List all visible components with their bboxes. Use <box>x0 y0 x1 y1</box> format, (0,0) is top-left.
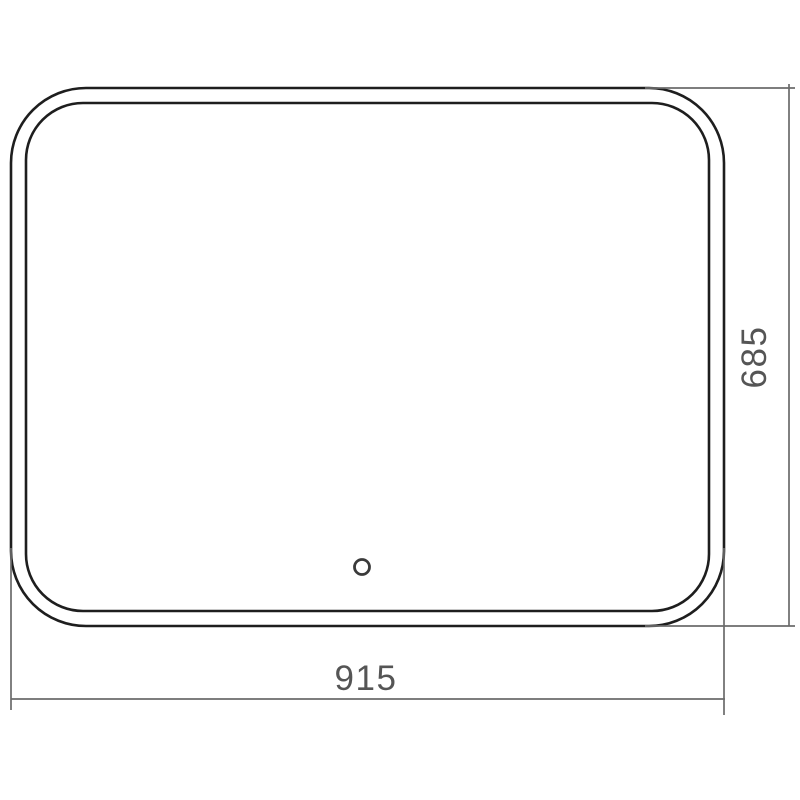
width-dimension-label: 915 <box>335 659 398 698</box>
height-dimension-label: 685 <box>735 326 774 389</box>
drawing-svg: 915 685 <box>0 0 800 800</box>
touch-sensor-dot <box>355 560 370 575</box>
mirror-inner-edge <box>26 103 709 611</box>
mirror-dimension-drawing: 915 685 <box>0 0 800 800</box>
mirror-outer-frame <box>11 88 724 626</box>
